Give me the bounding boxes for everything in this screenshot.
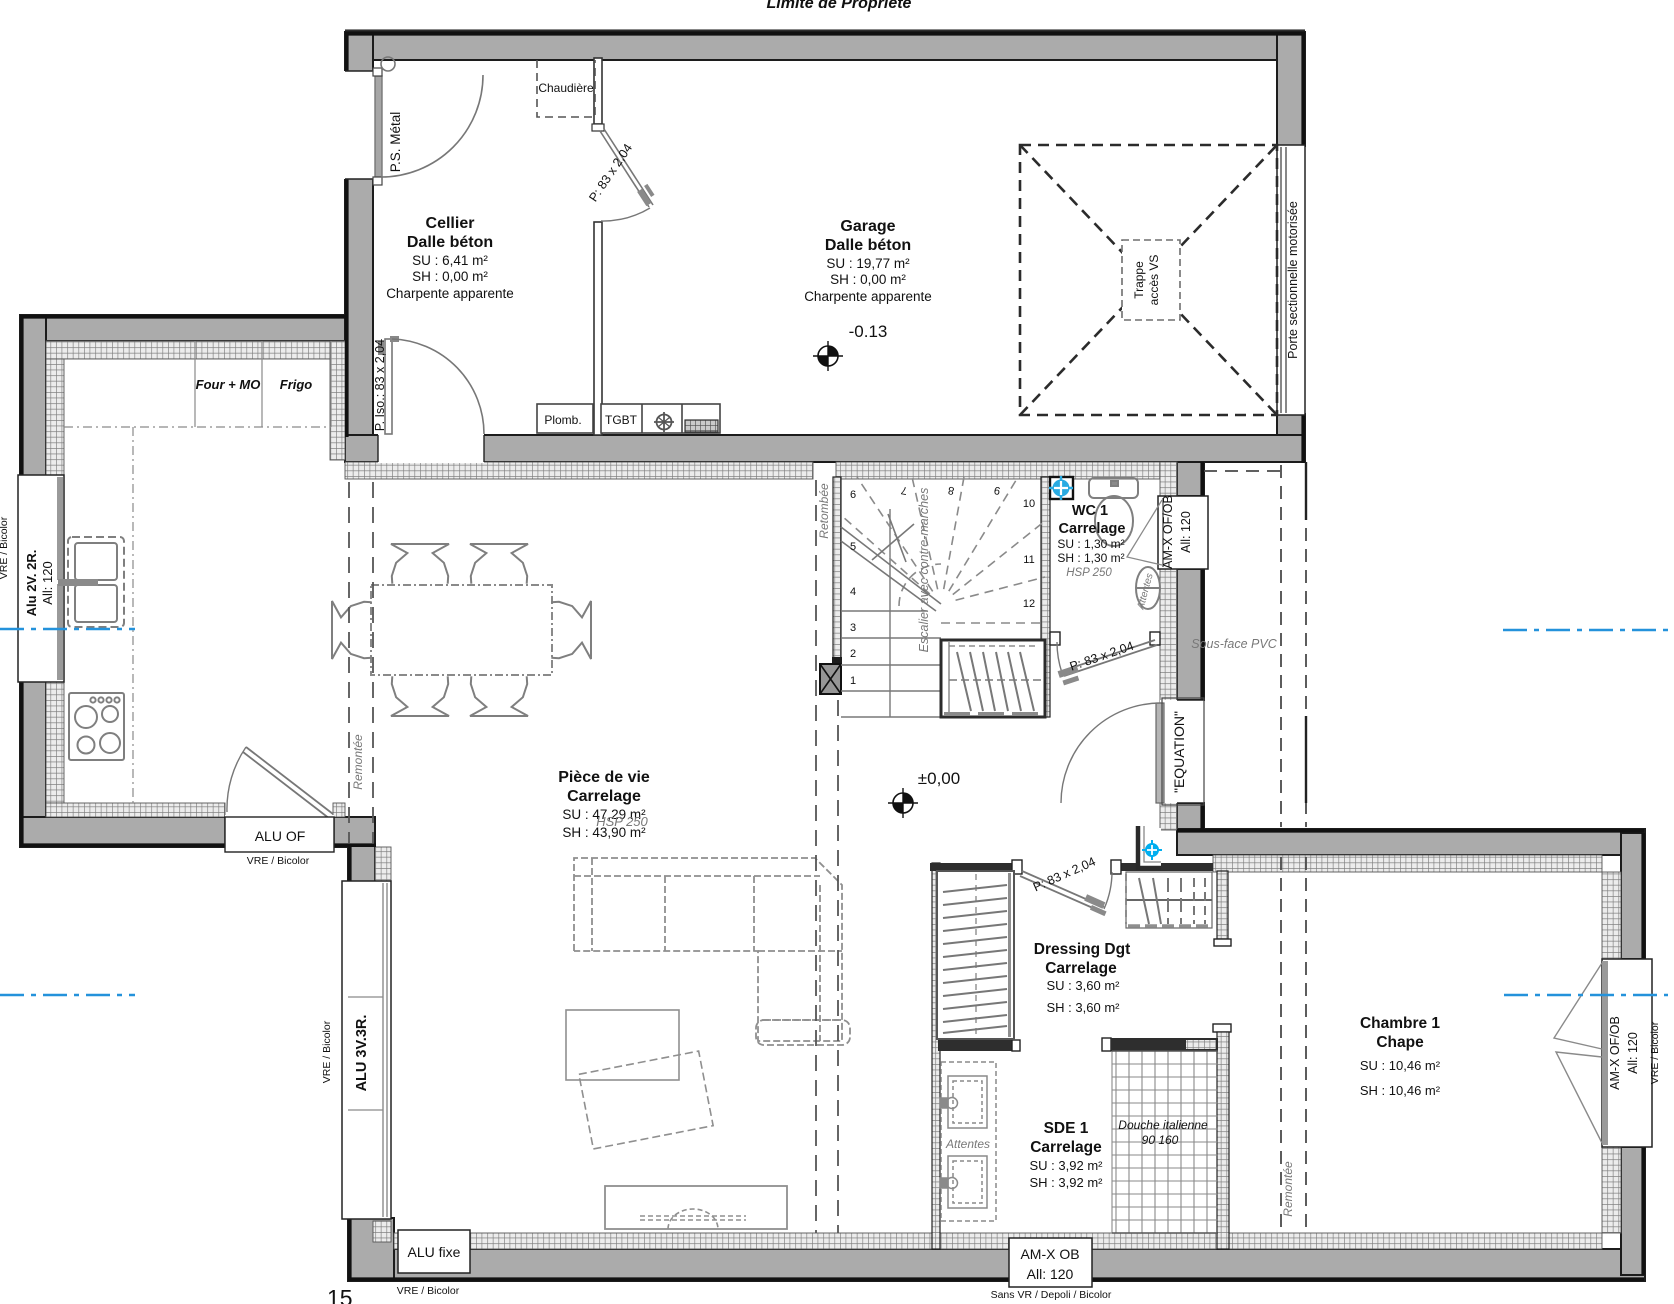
svg-text:SH : 3,60 m²: SH : 3,60 m²: [1047, 1000, 1121, 1015]
svg-text:SU : 3,60 m²: SU : 3,60 m²: [1047, 978, 1121, 993]
svg-text:Four + MO: Four + MO: [196, 377, 261, 392]
svg-text:P. Iso.: 83 x 2,04: P. Iso.: 83 x 2,04: [373, 339, 387, 431]
svg-text:Limite de Proprieté: Limite de Proprieté: [767, 0, 912, 12]
svg-text:1: 1: [850, 675, 856, 687]
svg-text:Garage: Garage: [840, 218, 895, 235]
svg-text:accès VS: accès VS: [1147, 255, 1161, 306]
svg-text:SH : 0,00 m²: SH : 0,00 m²: [830, 272, 906, 287]
svg-text:SU : 1,30 m²: SU : 1,30 m²: [1057, 537, 1124, 551]
svg-text:WC 1: WC 1: [1072, 503, 1108, 519]
svg-text:SH : 43,90 m²: SH : 43,90 m²: [562, 825, 646, 840]
svg-text:Chape: Chape: [1376, 1034, 1424, 1051]
svg-text:Chambre 1: Chambre 1: [1360, 1015, 1440, 1032]
svg-text:SDE 1: SDE 1: [1044, 1120, 1089, 1137]
svg-text:±0,00: ±0,00: [918, 769, 960, 788]
svg-text:Remontée: Remontée: [351, 734, 365, 790]
svg-text:SH : 3,92 m²: SH : 3,92 m²: [1030, 1175, 1104, 1190]
svg-text:Sans VR / Depoli / Bicolor: Sans VR / Depoli / Bicolor: [991, 1289, 1112, 1301]
svg-text:SU : 10,46 m²: SU : 10,46 m²: [1360, 1058, 1441, 1073]
svg-text:SH : 1,30 m²: SH : 1,30 m²: [1057, 551, 1124, 565]
svg-text:11: 11: [1023, 554, 1034, 566]
svg-text:All: 120: All: 120: [1027, 1266, 1074, 1282]
svg-text:Trappe: Trappe: [1132, 261, 1146, 299]
svg-text:Dalle béton: Dalle béton: [825, 237, 911, 254]
svg-text:Pièce de vie: Pièce de vie: [558, 769, 650, 786]
svg-text:ALU 3V.3R.: ALU 3V.3R.: [354, 1015, 370, 1092]
svg-text:Porte sectionnelle motorisée: Porte sectionnelle motorisée: [1286, 201, 1300, 359]
svg-text:SU : 6,41 m²: SU : 6,41 m²: [412, 253, 488, 268]
svg-text:Frigo: Frigo: [280, 377, 313, 392]
svg-text:Dalle béton: Dalle béton: [407, 234, 493, 251]
svg-text:15: 15: [327, 1285, 353, 1304]
svg-text:TGBT: TGBT: [605, 413, 638, 427]
svg-text:Carrelage: Carrelage: [1030, 1139, 1102, 1156]
svg-text:Charpente apparente: Charpente apparente: [804, 289, 932, 304]
svg-text:"EQUATION": "EQUATION": [1171, 711, 1187, 793]
svg-text:Remontée: Remontée: [1281, 1161, 1295, 1217]
svg-text:ALU fixe: ALU fixe: [408, 1244, 461, 1260]
svg-text:5: 5: [850, 541, 856, 553]
svg-text:10: 10: [1023, 498, 1035, 510]
svg-text:12: 12: [1023, 598, 1035, 610]
svg-text:All: 120: All: 120: [1179, 511, 1193, 553]
svg-text:Charpente apparente: Charpente apparente: [386, 286, 514, 301]
svg-text:Cellier: Cellier: [426, 215, 475, 232]
svg-text:VRE / Bicolor: VRE / Bicolor: [321, 1020, 333, 1083]
svg-text:SH : 10,46 m²: SH : 10,46 m²: [1360, 1083, 1441, 1098]
svg-text:All: 120: All: 120: [40, 561, 55, 604]
svg-text:Carrelage: Carrelage: [1045, 960, 1117, 977]
svg-text:AM-X OF/OB: AM-X OF/OB: [1161, 495, 1175, 569]
svg-text:SU : 3,92 m²: SU : 3,92 m²: [1030, 1158, 1104, 1173]
svg-text:Douche italienne: Douche italienne: [1118, 1118, 1208, 1132]
svg-text:HSP 250: HSP 250: [1066, 567, 1112, 579]
svg-text:Carrelage: Carrelage: [567, 788, 641, 805]
svg-text:2: 2: [850, 648, 856, 660]
svg-text:Carrelage: Carrelage: [1059, 521, 1126, 537]
svg-text:4: 4: [850, 586, 856, 598]
svg-text:Sous-face PVC: Sous-face PVC: [1191, 637, 1277, 651]
svg-text:SU : 19,77 m²: SU : 19,77 m²: [826, 256, 910, 271]
svg-text:Dressing Dgt: Dressing Dgt: [1034, 941, 1130, 958]
svg-text:ALU OF: ALU OF: [255, 828, 306, 844]
svg-text:VRE / Bicolor: VRE / Bicolor: [247, 855, 310, 867]
svg-text:90 160: 90 160: [1142, 1133, 1179, 1147]
svg-text:Plomb.: Plomb.: [544, 413, 581, 427]
svg-text:Escalier avec contre-marches: Escalier avec contre-marches: [917, 488, 931, 653]
svg-text:All: 120: All: 120: [1626, 1032, 1640, 1074]
svg-text:AM-X OB: AM-X OB: [1020, 1246, 1079, 1262]
svg-text:Chaudière: Chaudière: [538, 81, 594, 95]
svg-text:Retombée: Retombée: [817, 483, 831, 539]
svg-text:VRE / Bicolor: VRE / Bicolor: [1649, 1021, 1661, 1084]
svg-text:Alu 2V. 2R.: Alu 2V. 2R.: [24, 550, 39, 617]
svg-text:Attentes: Attentes: [945, 1137, 990, 1151]
svg-text:SH : 0,00 m²: SH : 0,00 m²: [412, 269, 488, 284]
svg-text:AM-X OF/OB: AM-X OF/OB: [1608, 1016, 1622, 1090]
svg-text:VRE / Bicolor: VRE / Bicolor: [397, 1285, 460, 1297]
svg-text:3: 3: [850, 622, 856, 634]
svg-text:6: 6: [850, 489, 856, 501]
svg-text:P.S. Métal: P.S. Métal: [388, 112, 403, 173]
svg-text:VRE / Bicolor: VRE / Bicolor: [0, 516, 10, 579]
svg-text:-0.13: -0.13: [849, 322, 888, 341]
